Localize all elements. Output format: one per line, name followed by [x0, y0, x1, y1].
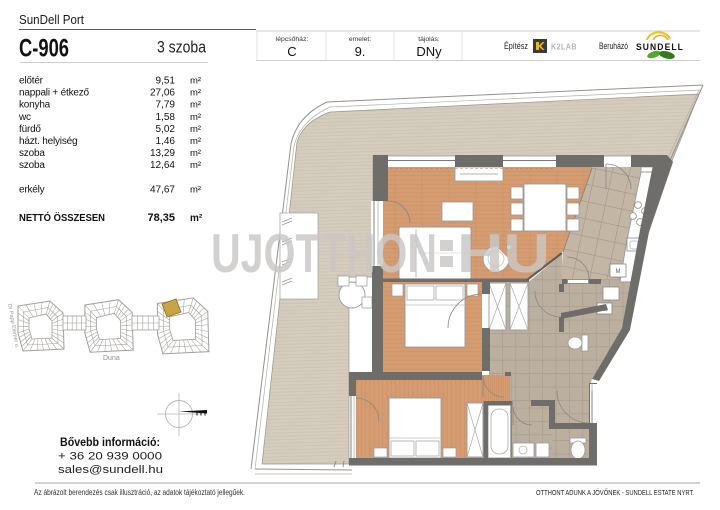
- svg-text:47,67: 47,67: [150, 185, 175, 196]
- svg-text:m²: m²: [190, 100, 201, 111]
- svg-text:DNy: DNy: [416, 44, 442, 59]
- svg-text:emelet:: emelet:: [349, 36, 371, 43]
- svg-text:m²: m²: [190, 160, 201, 171]
- svg-text:Beruházó: Beruházó: [599, 41, 628, 51]
- svg-text:előtér: előtér: [19, 76, 44, 87]
- svg-text:NETTÓ ÖSSZESEN: NETTÓ ÖSSZESEN: [19, 211, 105, 224]
- svg-text:fürdő: fürdő: [19, 124, 41, 135]
- svg-text:m²: m²: [190, 213, 203, 224]
- svg-text:m²: m²: [190, 136, 201, 147]
- svg-text:szoba: szoba: [19, 160, 45, 171]
- svg-text:27,06: 27,06: [150, 88, 175, 99]
- svg-text:Duna: Duna: [103, 355, 120, 362]
- svg-text:nappali + étkező: nappali + étkező: [19, 88, 90, 99]
- svg-text:SUNDELL: SUNDELL: [636, 42, 684, 52]
- svg-text:HU: HU: [457, 222, 550, 284]
- svg-text:m²: m²: [190, 124, 201, 135]
- svg-text:szoba: szoba: [19, 148, 45, 159]
- svg-text:1,58: 1,58: [156, 112, 176, 123]
- svg-text:9,51: 9,51: [156, 76, 176, 87]
- svg-text:5,02: 5,02: [156, 124, 176, 135]
- svg-text:C-906: C-906: [19, 35, 69, 63]
- svg-text:erkély: erkély: [19, 185, 45, 196]
- svg-text:+ 36 20 939 0000: + 36 20 939 0000: [58, 451, 162, 463]
- svg-text:M: M: [616, 269, 621, 275]
- svg-text:konyha: konyha: [19, 100, 51, 111]
- svg-text:13,29: 13,29: [150, 148, 175, 159]
- svg-text:UJOTTHON: UJOTTHON: [211, 222, 437, 284]
- svg-text:OTTHONT ADUNK A JÖVŐNEK - SUND: OTTHONT ADUNK A JÖVŐNEK - SUNDELL ESTATE…: [536, 488, 694, 497]
- svg-text:m²: m²: [190, 76, 201, 87]
- svg-text:Bővebb információ:: Bővebb információ:: [60, 437, 160, 449]
- svg-text:78,35: 78,35: [147, 212, 175, 224]
- svg-text:Az ábrázolt berendezés csak il: Az ábrázolt berendezés csak illusztráció…: [34, 488, 245, 497]
- svg-text:m²: m²: [190, 148, 201, 159]
- svg-text:K2LAB: K2LAB: [551, 42, 577, 52]
- svg-text:SunDell Port: SunDell Port: [19, 12, 84, 27]
- svg-text:12,64: 12,64: [150, 160, 175, 171]
- svg-text:Építész: Építész: [504, 41, 528, 51]
- svg-text:m²: m²: [190, 185, 201, 196]
- svg-text:7,79: 7,79: [156, 100, 176, 111]
- svg-text:m²: m²: [190, 88, 201, 99]
- svg-text:tájolás:: tájolás:: [418, 36, 440, 43]
- svg-text:házt. helyiség: házt. helyiség: [19, 136, 77, 147]
- svg-text:3 szoba: 3 szoba: [157, 38, 206, 57]
- svg-text:9.: 9.: [355, 44, 366, 59]
- svg-text:C: C: [287, 44, 296, 59]
- svg-text:sales@sundell.hu: sales@sundell.hu: [58, 464, 163, 476]
- svg-text:1,46: 1,46: [156, 136, 176, 147]
- svg-text:wc: wc: [18, 112, 31, 123]
- svg-text:lépcsőház:: lépcsőház:: [276, 36, 309, 43]
- svg-text:m²: m²: [190, 112, 201, 123]
